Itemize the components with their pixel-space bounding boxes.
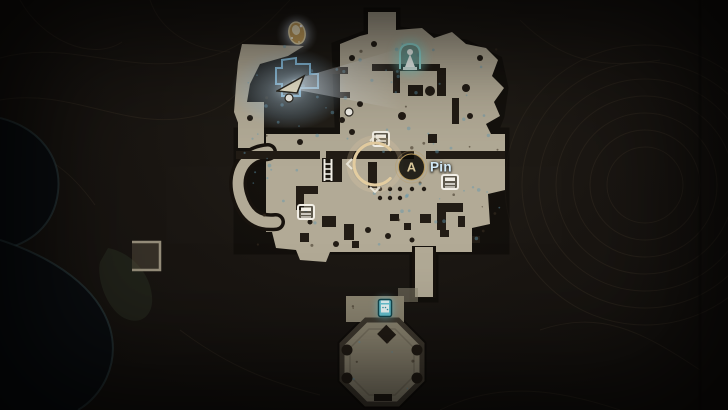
map-viewport[interactable]: A Pin (0, 0, 728, 410)
tall-ladder-icon (321, 158, 335, 182)
icon-layer: A Pin (0, 0, 728, 410)
treasure-emblem-icon (284, 18, 310, 48)
merchant-tent-icon (276, 74, 306, 96)
typewriter-save-icon (378, 299, 393, 318)
pin-action-label: Pin (430, 160, 452, 175)
gamepad-a-button-icon[interactable]: A (398, 154, 425, 181)
shrine-statue-icon (396, 40, 424, 72)
map-dot-icon (343, 106, 355, 118)
ladder-icon (297, 204, 315, 220)
a-button-label: A (407, 161, 416, 174)
map-dot-icon (283, 92, 295, 104)
pin-button-prompt[interactable]: A Pin (398, 154, 452, 181)
ladder-icon (372, 131, 390, 147)
